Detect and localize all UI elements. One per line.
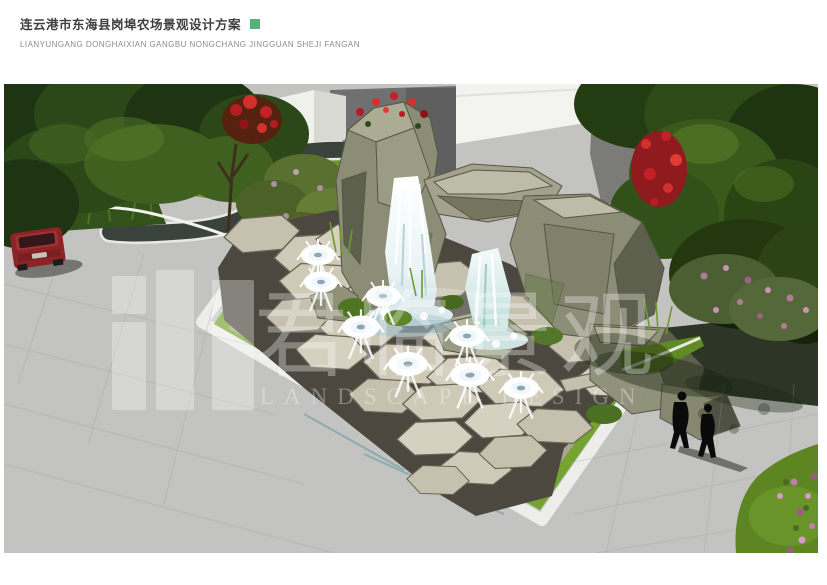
design-board: 连云港市东海县岗埠农场景观设计方案 LIANYUNGANG DONGHAIXIA… [0,0,827,585]
watermark-cn: 君临景观 [254,282,662,391]
accent-square-icon [250,19,260,29]
watermark-logo [112,270,254,410]
red-flower-shrub [631,131,687,207]
page-subtitle: LIANYUNGANG DONGHAIXIAN GANGBU NONGCHANG… [20,40,360,49]
watermark-en: LANDSCAPE DESIGN [260,384,646,409]
render-scene: 君临景观 LANDSCAPE DESIGN [4,84,818,553]
header: 连云港市东海县岗埠农场景观设计方案 LIANYUNGANG DONGHAIXIA… [20,14,360,49]
page-title: 连云港市东海县岗埠农场景观设计方案 [20,14,241,33]
landscape-render: 君临景观 LANDSCAPE DESIGN [4,84,818,553]
